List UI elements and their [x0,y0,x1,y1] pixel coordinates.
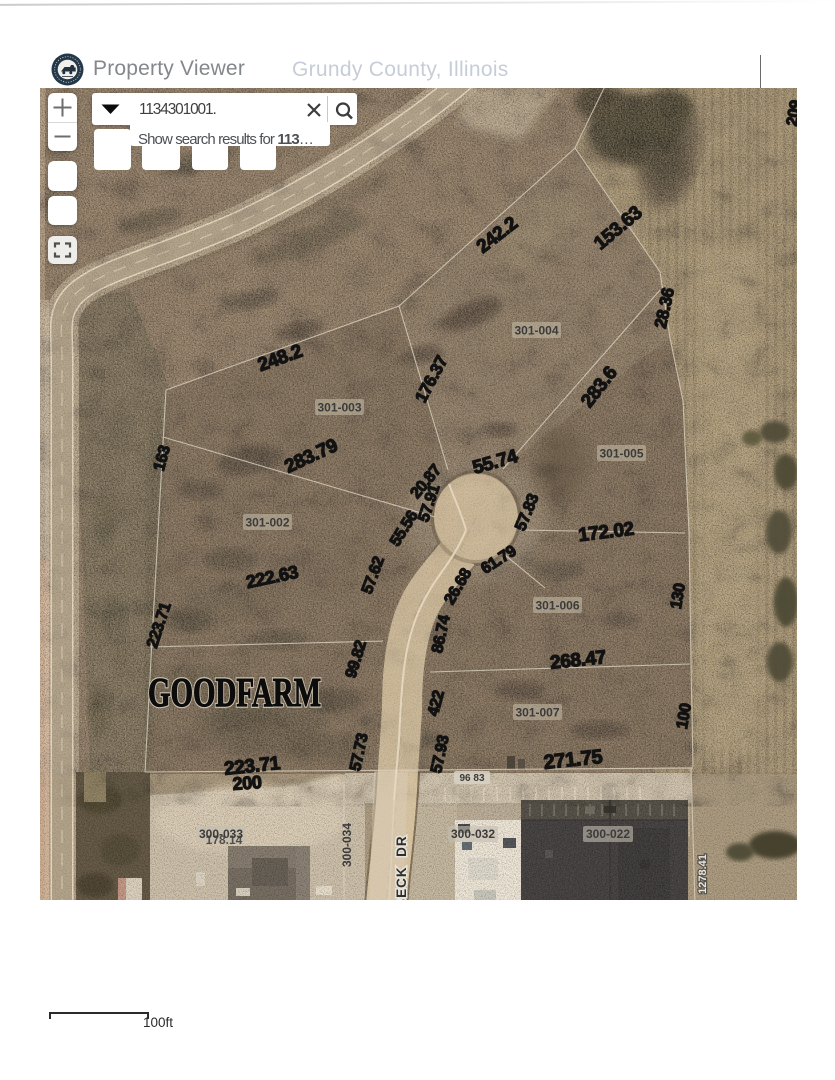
svg-text:301-006: 301-006 [535,599,579,613]
svg-text:301-004: 301-004 [514,324,558,338]
svg-text:300-034: 300-034 [340,823,354,867]
svg-text:301-007: 301-007 [515,706,559,720]
svg-text:200: 200 [232,772,263,794]
svg-text:300-022: 300-022 [586,827,630,841]
svg-text:GOODFARM: GOODFARM [148,669,321,715]
svg-text:301-002: 301-002 [245,516,289,530]
svg-text:301-003: 301-003 [317,401,361,415]
svg-text:178.14: 178.14 [206,833,243,847]
svg-text:300-032: 300-032 [451,827,495,841]
svg-text:BECK DR: BECK DR [394,835,409,900]
svg-text:301-005: 301-005 [599,447,643,461]
svg-text:1278.41: 1278.41 [697,854,709,894]
svg-text:96 83: 96 83 [459,773,484,784]
